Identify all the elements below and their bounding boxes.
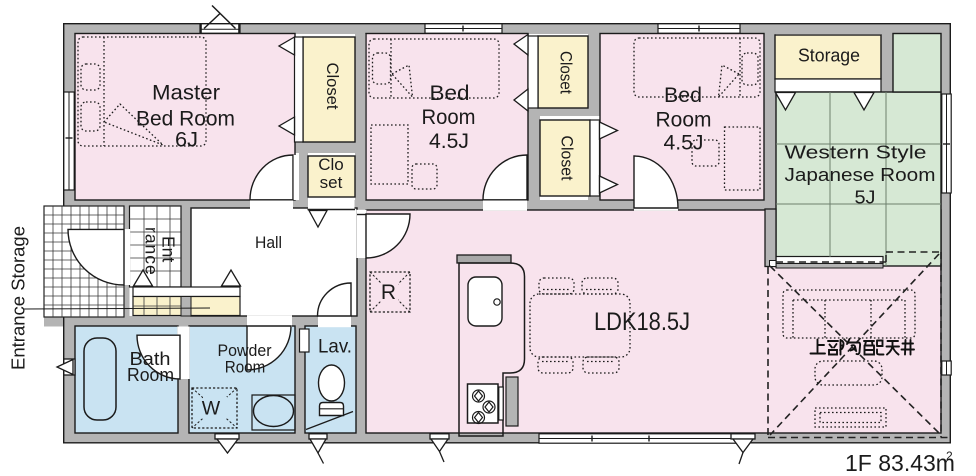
svg-text:Storage: Storage [798,46,860,66]
svg-text:Entrance Storage: Entrance Storage [8,226,29,370]
svg-text:Lav.: Lav. [318,337,352,358]
svg-text:Room: Room [225,358,266,377]
svg-text:R: R [381,281,396,304]
svg-text:2: 2 [946,449,953,463]
svg-text:rance: rance [142,227,162,276]
svg-text:Hall: Hall [255,233,282,252]
svg-text:Room: Room [656,109,712,132]
svg-text:LDK18.5J: LDK18.5J [594,308,690,336]
svg-text:Western Style: Western Style [785,142,927,163]
svg-text:6J: 6J [175,129,198,152]
svg-text:Clo: Clo [318,155,344,174]
svg-text:4.5J: 4.5J [429,130,469,153]
svg-text:4.5J: 4.5J [664,132,704,155]
svg-text:Master: Master [152,82,220,105]
svg-text:Room: Room [422,106,476,129]
svg-text:Room: Room [127,365,174,385]
svg-text:Closet: Closet [323,63,341,110]
svg-text:W: W [202,398,221,420]
svg-text:5J: 5J [855,187,876,208]
svg-text:set: set [320,173,343,192]
svg-text:1F 83.43m: 1F 83.43m [845,450,955,476]
svg-text:Closet: Closet [558,136,576,181]
svg-text:Bed Room: Bed Room [136,108,235,131]
svg-text:Bed: Bed [430,82,470,105]
svg-text:Bed: Bed [664,84,702,107]
svg-text:Japanese Room: Japanese Room [785,164,936,185]
svg-text:Closet: Closet [557,51,575,94]
